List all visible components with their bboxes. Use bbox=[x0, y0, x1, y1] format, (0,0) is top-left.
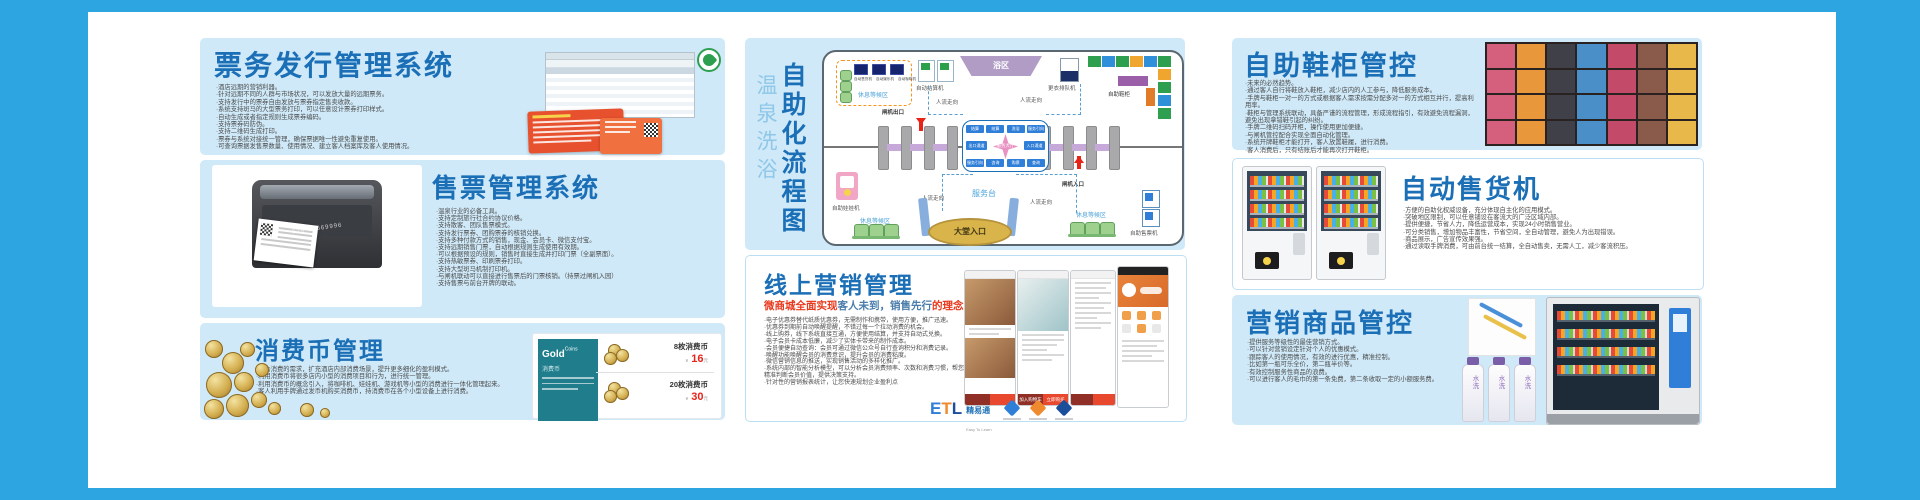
sales-bullets: ·温泉行业的必备工具。·支持定制旅行社合约协议价格。·支持散客、团队售票模式。·… bbox=[436, 208, 716, 287]
hub-button: 结算 bbox=[966, 125, 984, 133]
seat-icon bbox=[840, 70, 852, 81]
ticket-card-photo-2 bbox=[600, 118, 662, 154]
online-subtitle: 微商城全面实现客人未到，销售先行的理念 bbox=[764, 298, 964, 313]
bath-zone: 浴区 bbox=[960, 56, 1042, 76]
flow-direction-label: 人流走向 bbox=[1020, 96, 1042, 104]
shoes-bullets: ·未来的必然趋势。·通过客人自行将鞋放入鞋柜，减少店内的人工参与，降低服务成本。… bbox=[1245, 80, 1480, 154]
flow-direction-label: 人流走向 bbox=[936, 98, 958, 106]
bullet-line: ·针对远期不同的人群与市场状况，可以发放大量的远期票务。 bbox=[216, 91, 521, 98]
hub-button: 洗浴 bbox=[1007, 125, 1025, 133]
drink-fridge-photo bbox=[1546, 297, 1700, 425]
bullet-line: ·鞋柜与管理系统联动，具备严谨的流程管理，形成流程指引，有效避免流程漏洞，避免出… bbox=[1245, 110, 1480, 125]
hub-entry-lane: 入口通道 bbox=[1024, 141, 1045, 150]
etl-logo: ETL 精易通 Easy To Learn bbox=[930, 400, 992, 436]
claw-machine-icon bbox=[836, 172, 858, 200]
bullet-line: ·比如第一瓶可乐全价，第二瓶半价等。 bbox=[1247, 361, 1469, 368]
panel-title: 线上营销管理 bbox=[764, 266, 914, 300]
ticket-machine-icon bbox=[1142, 209, 1160, 227]
hub-buttons-bottom: 服务引向咨询购票查询 bbox=[966, 159, 1045, 167]
bullet-line: ·可以针对营销设定针对个人的优惠模式。 bbox=[1247, 346, 1469, 353]
queue-machine-icon bbox=[1060, 58, 1079, 82]
vending-machine-photo bbox=[1316, 166, 1386, 280]
bullet-line: ·与闸机联动可以直接进行售票后的门票核销。（持票过闸机入园） bbox=[436, 273, 716, 280]
bullet-line: ·手牌与鞋柜一对一的方式或根据客人需求按需分配多对一的方式相互并行，提高利用率。 bbox=[1245, 95, 1480, 110]
etl-logo-cn: 精易通 bbox=[966, 406, 990, 415]
etl-logo-tagline: Easy To Learn bbox=[966, 427, 992, 432]
toothbrush-photo bbox=[1468, 298, 1536, 356]
service-hub: 结算结算洗浴服务引向 出口通道 入口通道 服务大厅 服务引向咨询购票查询 bbox=[962, 120, 1049, 172]
rest-area-label: 休息等候区 bbox=[1076, 210, 1106, 219]
panel-title: 票务发行管理系统 bbox=[214, 44, 454, 84]
bullet-line: ·支持售票与前台开牌的联动。 bbox=[436, 280, 716, 287]
flow-direction-label: 人流走向 bbox=[1030, 198, 1052, 206]
poster: 票务发行管理系统 ·酒店远期的营销利器。·针对远期不同的人群与市场状况，可以发放… bbox=[0, 0, 1920, 500]
bullet-line: ·可以进行客人的毛巾的第一条免费，第二条收取一定的小额服务费。 bbox=[1247, 376, 1469, 383]
mini-machine-label: 自动娱乐机 bbox=[875, 76, 895, 81]
phone-mockup-1 bbox=[964, 270, 1016, 406]
bullet-line: ·支持散客、团队售票模式。 bbox=[436, 222, 716, 229]
settle-machine-icon bbox=[937, 60, 954, 82]
card-brand-label: 消费币 bbox=[542, 364, 594, 373]
phone-mockup-2: 加入购物车 立即购买 bbox=[1017, 270, 1069, 406]
bullet-line: ·客人消费后，只有结账后才能再次打开鞋柜。 bbox=[1245, 147, 1480, 154]
hub-button: 咨询 bbox=[986, 159, 1004, 167]
flow-path bbox=[942, 174, 973, 211]
bullet-line: ·系统开牌鞋柜才能打开，客人放置鞋履，进行消费。 bbox=[1245, 139, 1480, 146]
vending-mini-icon bbox=[854, 64, 868, 75]
seat-icon bbox=[840, 81, 852, 92]
phone-mockup-3 bbox=[1070, 270, 1116, 406]
bullet-line: ·系统内部的智能分析模型，可以分析会员消费频率、次数和消费习惯，帮您精准判断会员… bbox=[764, 366, 969, 380]
label-printer bbox=[252, 180, 382, 268]
panel-title: 自动售货机 bbox=[1401, 169, 1541, 206]
bullet-line: ·提供便捷，节省人力，降低运营成本，实现24小时销售营业。 bbox=[1403, 221, 1688, 228]
bullet-line: ·针对性的营销报表统计，让您快速规划企业盈利点 bbox=[764, 380, 969, 387]
bullet-line: ·有效控制服务性商品的浪费。 bbox=[1247, 369, 1469, 376]
card-brand: Gold bbox=[542, 349, 565, 360]
bullet-line: ·自动生成或者指定规则生成票券编码。 bbox=[216, 114, 521, 121]
bullet-line: ·系统支持斑马的大型票务打印，可以任意设计票券打印样式。 bbox=[216, 106, 521, 113]
coffee-mini-icon bbox=[890, 64, 904, 75]
avatar bbox=[1122, 283, 1136, 297]
bullet-line: ·支持大型斑马机制打印机。 bbox=[436, 266, 716, 273]
bullet-line: ·支持发行票券、团购票券的核销兑换。 bbox=[436, 230, 716, 237]
bullet-line: ·电子优惠券替代纸质优惠券，无需制作和携带，使用方便，推广迅速。 bbox=[764, 318, 969, 325]
gate-pillar bbox=[1109, 126, 1120, 170]
lobby-entrance: 大堂入口 bbox=[928, 218, 1012, 246]
service-desk-label: 服务台 bbox=[972, 188, 996, 199]
hub-button: 查询 bbox=[1027, 159, 1045, 167]
shoe-locker-label: 自助鞋柜 bbox=[1108, 90, 1130, 98]
ticketing-bullets: ·酒店远期的营销利器。·针对远期不同的人群与市场状况，可以发放大量的远期票务。·… bbox=[216, 84, 521, 151]
ticket-machine-label: 自助售票机 bbox=[1130, 229, 1158, 237]
hub-button: 服务引向 bbox=[966, 159, 984, 167]
bullet-line: ·可查询票据发售票数量、使用情况、建立客人档案库及客人使用情况。 bbox=[216, 143, 521, 150]
goods-bullets: ·提供服务等级性的最佳营销方式。·可以针对营销设定针对个人的优惠模式。·跟踪客人… bbox=[1247, 339, 1469, 383]
hub-exit-lane: 出口通道 bbox=[966, 141, 987, 150]
hub-button: 结算 bbox=[986, 125, 1004, 133]
panel-title: 消费币管理 bbox=[255, 331, 385, 366]
bullet-line: ·手牌二维码扫码开柜，操作使用更加便捷。 bbox=[1245, 124, 1480, 131]
service-cross-icon: 服务大厅 bbox=[993, 134, 1018, 159]
flow-map: 自动售货机自动娱乐机自动咖啡机 休息等候区 自动结算机 浴区 更衣排队机 自助鞋… bbox=[822, 50, 1184, 246]
printed-ticket-label bbox=[254, 219, 319, 268]
flow-path bbox=[1016, 174, 1077, 213]
bullet-line: ·支持热敏票券、印刷票券打印。 bbox=[436, 258, 716, 265]
gate-pillar bbox=[947, 126, 958, 170]
panel-title: 营销商品管控 bbox=[1246, 303, 1414, 340]
vending-bullets: ·方便的自助化权威设备，充分体现自主化的应用模式。·突破地区限制，可以任意铺设在… bbox=[1403, 207, 1688, 250]
bullet-line: ·通过客人自行将鞋放入鞋柜，减少店内的人工参与，降低服务成本。 bbox=[1245, 87, 1480, 94]
hub-button: 服务引向 bbox=[1027, 125, 1045, 133]
flow-path bbox=[1046, 84, 1081, 115]
hub-button: 购票 bbox=[1007, 159, 1025, 167]
flow-title-bold: 自助化流程图 bbox=[774, 62, 810, 236]
panel-title: 售票管理系统 bbox=[432, 168, 600, 205]
seat-icon bbox=[840, 92, 852, 103]
online-bullets: ·电子优惠券替代纸质优惠券，无需制作和携带，使用方便，推广迅速。·优惠券到期前自… bbox=[764, 318, 969, 387]
ticket-machine-icon bbox=[1142, 190, 1160, 208]
rest-area-label: 休息等候区 bbox=[858, 90, 888, 99]
gold-coin-card: GoldCoins 消费币 bbox=[538, 339, 598, 421]
gate-exit-label: 闸机出口 bbox=[882, 108, 904, 116]
mini-machine-label: 自动售货机 bbox=[853, 76, 873, 81]
phone-mockup-app bbox=[1117, 266, 1169, 408]
shoe-locker-photo bbox=[1485, 42, 1698, 146]
mini-machine-label: 自动咖啡机 bbox=[897, 76, 917, 81]
hub-buttons-top: 结算结算洗浴服务引向 bbox=[966, 125, 1045, 133]
bullet-line: ·商品展示，广告宣传效果强。 bbox=[1403, 236, 1688, 243]
panel-title: 自助鞋柜管控 bbox=[1244, 44, 1418, 83]
bullet-line: ·支持多种付款方式的销售，现金、会员卡、微信支付宝。 bbox=[436, 237, 716, 244]
brand-leaf-icon bbox=[697, 48, 721, 72]
bullet-line: ·电子会员卡成本低廉，减少了实体卡带来的制作成本。 bbox=[764, 339, 969, 346]
bullet-line: ·通过读取手牌消费，可由前台统一结算，全自动售卖，无需人工，减少客流积压。 bbox=[1403, 243, 1688, 250]
bullet-line: ·优惠券到期前自动唤醒提醒，不错过每一个拉动消费的机会。 bbox=[764, 325, 969, 332]
bullet-line: ·可分类销售，增加物品丰富性，节省空间，全自动管理，避免人为出现错误。 bbox=[1403, 229, 1688, 236]
bullet-line: ·线上购券，线下系统直接互通，方便使用结算，并支持自动式兑换。 bbox=[764, 332, 969, 339]
mini-machine-labels: 自动售货机自动娱乐机自动咖啡机 bbox=[852, 76, 918, 82]
vending-machine-photo bbox=[1242, 166, 1312, 280]
claw-machine-label: 自助娃娃机 bbox=[832, 204, 860, 212]
settle-machine-icon bbox=[918, 60, 935, 82]
bullet-line: ·支持二维码生成打印。 bbox=[216, 128, 521, 135]
bullet-line: ·会员便捷自动查询：会员可通过微信公众号自行查询积分和消费记录。 bbox=[764, 346, 969, 353]
game-mini-icon bbox=[872, 64, 886, 75]
